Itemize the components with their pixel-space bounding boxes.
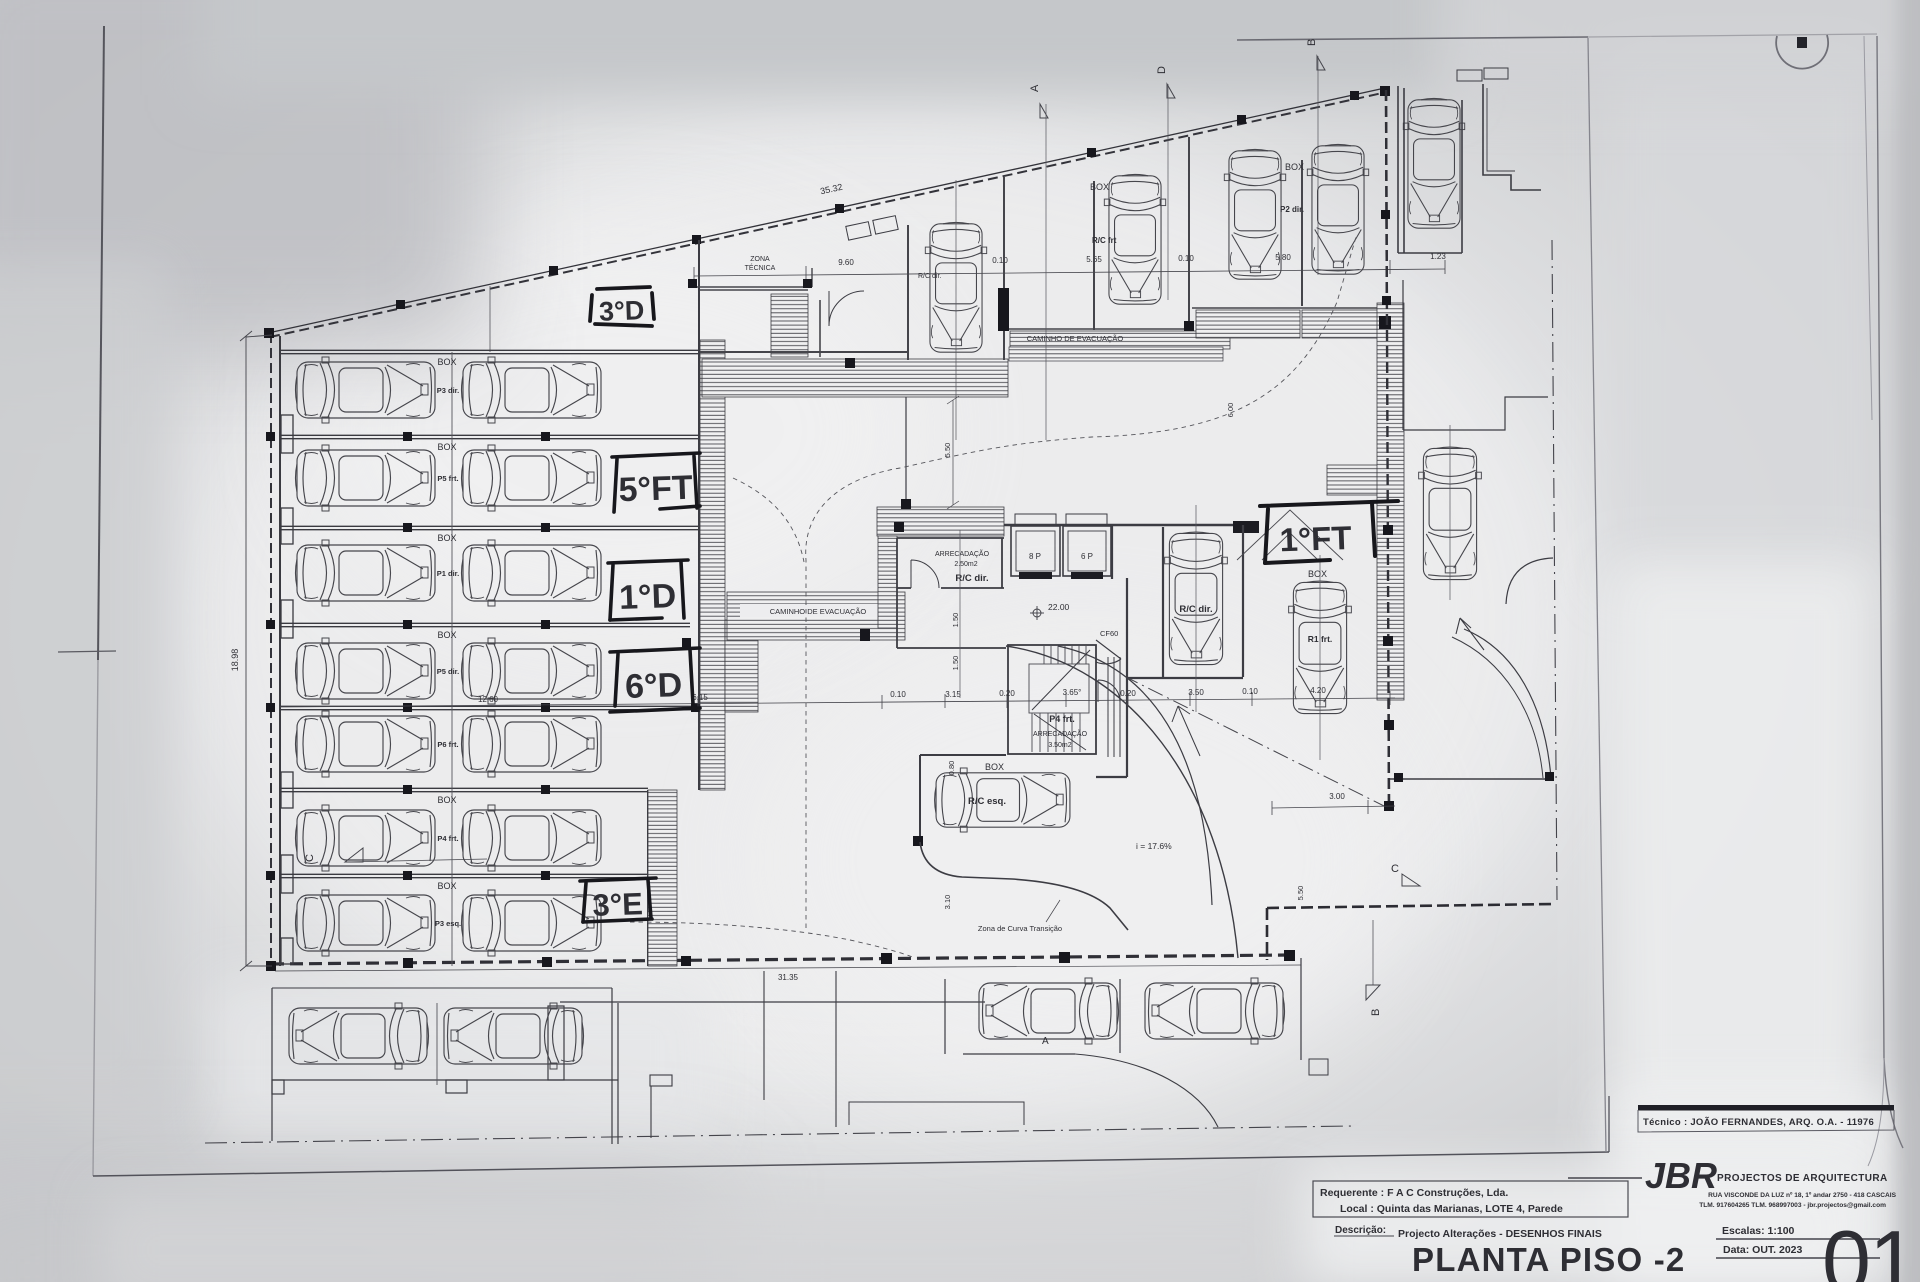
svg-text:6 P: 6 P	[1081, 552, 1093, 561]
svg-text:Descrição:: Descrição:	[1335, 1225, 1386, 1236]
svg-text:5.50: 5.50	[1296, 886, 1305, 901]
svg-text:BOX: BOX	[437, 795, 456, 805]
svg-text:P5 frt.: P5 frt.	[437, 474, 458, 483]
svg-text:22.00: 22.00	[1048, 602, 1070, 612]
svg-text:4.20: 4.20	[1310, 686, 1326, 695]
svg-text:Projecto Alterações - DESENHOS: Projecto Alterações - DESENHOS FINAIS	[1398, 1228, 1602, 1240]
svg-text:P3 esq.: P3 esq.	[435, 919, 461, 928]
svg-text:P6 frt.: P6 frt.	[437, 740, 458, 749]
svg-text:0.10: 0.10	[1242, 687, 1258, 696]
svg-text:PROJECTOS DE ARQUITECTURA: PROJECTOS DE ARQUITECTURA	[1717, 1173, 1888, 1184]
svg-text:BOX: BOX	[437, 533, 456, 543]
svg-text:PLANTA PISO -2: PLANTA PISO -2	[1412, 1241, 1686, 1278]
svg-text:ARRECADAÇÃO: ARRECADAÇÃO	[935, 549, 990, 558]
svg-text:6.00: 6.00	[1226, 403, 1235, 418]
svg-text:5°FT: 5°FT	[618, 469, 694, 510]
svg-text:P1 dir.: P1 dir.	[437, 569, 460, 578]
svg-text:9.60: 9.60	[838, 258, 854, 267]
svg-text:3°E: 3°E	[592, 886, 644, 923]
svg-text:A: A	[1042, 1036, 1049, 1047]
svg-text:B: B	[1370, 1009, 1382, 1016]
svg-text:3.10: 3.10	[943, 895, 952, 910]
svg-text:0.80: 0.80	[947, 761, 956, 776]
svg-text:Zona de Curva Transição: Zona de Curva Transição	[978, 924, 1062, 933]
svg-text:6°D: 6°D	[624, 666, 682, 706]
svg-text:0.10: 0.10	[992, 256, 1008, 265]
svg-text:BOX: BOX	[437, 357, 456, 367]
svg-text:BOX: BOX	[1090, 182, 1109, 192]
svg-text:8 P: 8 P	[1029, 552, 1041, 561]
svg-text:BOX: BOX	[1308, 569, 1327, 579]
svg-text:BOX: BOX	[437, 630, 456, 640]
svg-text:3.50m2: 3.50m2	[1048, 742, 1071, 749]
svg-text:CAMINHO DE EVACUAÇÃO: CAMINHO DE EVACUAÇÃO	[1027, 334, 1124, 343]
svg-text:Data: OUT. 2023: Data: OUT. 2023	[1723, 1244, 1803, 1256]
svg-text:2.50m2: 2.50m2	[954, 561, 977, 568]
svg-text:BOX: BOX	[985, 762, 1004, 772]
svg-text:Local : Quinta das Marianas, L: Local : Quinta das Marianas, LOTE 4, Par…	[1340, 1203, 1563, 1215]
svg-text:3.50: 3.50	[1188, 688, 1204, 697]
svg-text:JBR: JBR	[1645, 1155, 1717, 1196]
svg-text:R/C frt: R/C frt	[1092, 236, 1117, 245]
svg-text:3.00: 3.00	[1329, 792, 1345, 801]
svg-text:D: D	[1156, 66, 1168, 74]
svg-text:01: 01	[1822, 1212, 1916, 1282]
svg-text:ZONA: ZONA	[750, 256, 770, 263]
svg-text:CF60: CF60	[1100, 629, 1118, 638]
svg-text:1°D: 1°D	[618, 577, 676, 617]
svg-text:BOX: BOX	[1285, 162, 1304, 172]
svg-text:RUA VISCONDE DA LUZ nº 18, 1º: RUA VISCONDE DA LUZ nº 18, 1º andar 2750…	[1708, 1192, 1897, 1199]
svg-text:0.10: 0.10	[890, 690, 906, 699]
svg-text:P4 frt.: P4 frt.	[437, 834, 458, 843]
svg-text:1.50: 1.50	[951, 613, 960, 628]
svg-text:12.60: 12.60	[478, 695, 499, 704]
svg-text:Escalas: 1:100: Escalas: 1:100	[1722, 1225, 1795, 1237]
svg-text:3.65°: 3.65°	[1063, 688, 1082, 697]
svg-text:Requerente : F A C Construçõe: Requerente : F A C Construções, Lda.	[1320, 1187, 1508, 1199]
svg-text:BOX: BOX	[437, 442, 456, 452]
svg-text:ARRECADAÇÃO: ARRECADAÇÃO	[1033, 729, 1088, 738]
svg-text:5.50: 5.50	[943, 443, 952, 458]
svg-text:Técnico : JOÃO FERNANDES, ARQ.: Técnico : JOÃO FERNANDES, ARQ. O.A. - 11…	[1643, 1117, 1874, 1128]
svg-text:0.10: 0.10	[1178, 254, 1194, 263]
svg-text:0.20: 0.20	[1120, 689, 1136, 698]
svg-text:R/C dir.: R/C dir.	[955, 573, 988, 584]
svg-text:i = 17.6%: i = 17.6%	[1136, 841, 1172, 851]
svg-text:P2 dir.: P2 dir.	[1280, 205, 1304, 214]
svg-text:P5 dir.: P5 dir.	[437, 667, 460, 676]
svg-text:3.15: 3.15	[945, 690, 961, 699]
svg-text:P3 dir.: P3 dir.	[437, 386, 460, 395]
svg-text:18.98: 18.98	[230, 649, 240, 672]
svg-text:5.80: 5.80	[1275, 253, 1291, 262]
svg-text:B: B	[1306, 39, 1318, 46]
svg-text:CAMINHO DE EVACUAÇÃO: CAMINHO DE EVACUAÇÃO	[770, 607, 867, 616]
svg-text:TÉCNICA: TÉCNICA	[745, 263, 776, 272]
svg-text:R/C dir.: R/C dir.	[918, 273, 941, 280]
svg-text:6.15: 6.15	[692, 693, 708, 702]
svg-text:C: C	[1391, 863, 1399, 875]
svg-text:BOX: BOX	[437, 881, 456, 891]
svg-text:R/C esq.: R/C esq.	[968, 796, 1006, 807]
svg-text:0.20: 0.20	[999, 689, 1015, 698]
svg-text:1.50: 1.50	[951, 656, 960, 671]
svg-text:A: A	[1029, 84, 1041, 92]
svg-text:TLM. 917604265 TLM. 968997003: TLM. 917604265 TLM. 968997003 - jbr.proj…	[1699, 1202, 1886, 1209]
svg-text:1°FT: 1°FT	[1279, 519, 1352, 558]
svg-text:P4 frt.: P4 frt.	[1049, 714, 1075, 724]
svg-text:31.35: 31.35	[778, 973, 799, 982]
svg-text:3°D: 3°D	[599, 295, 645, 327]
